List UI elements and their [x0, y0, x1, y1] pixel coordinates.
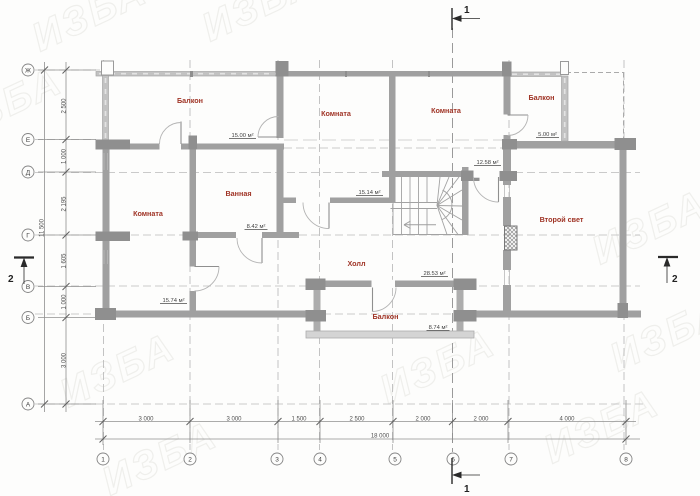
svg-text:1: 1 [101, 456, 105, 463]
svg-text:18 000: 18 000 [371, 434, 390, 440]
svg-text:Д: Д [26, 169, 31, 176]
svg-text:2 000: 2 000 [415, 417, 431, 423]
svg-text:2: 2 [8, 274, 14, 285]
svg-text:1: 1 [464, 484, 470, 495]
svg-text:Комната: Комната [321, 109, 352, 118]
svg-text:12.58 м²: 12.58 м² [476, 160, 498, 166]
svg-text:1 605: 1 605 [62, 253, 68, 269]
svg-text:Второй свет: Второй свет [540, 215, 584, 224]
svg-text:Балкон: Балкон [177, 96, 203, 105]
svg-text:Б: Б [26, 315, 30, 322]
svg-text:15.14 м²: 15.14 м² [358, 190, 380, 196]
svg-text:Балкон: Балкон [373, 312, 399, 321]
svg-text:Е: Е [26, 137, 31, 144]
svg-text:Ж: Ж [25, 67, 31, 74]
svg-text:11 500: 11 500 [40, 218, 46, 237]
svg-text:Комната: Комната [431, 106, 462, 115]
svg-text:2: 2 [672, 274, 678, 285]
svg-text:3 000: 3 000 [226, 417, 242, 423]
svg-text:1: 1 [464, 5, 470, 16]
svg-text:Холл: Холл [347, 259, 365, 268]
svg-text:А: А [26, 401, 31, 408]
svg-text:8: 8 [624, 456, 628, 463]
svg-text:15.74 м²: 15.74 м² [162, 298, 184, 304]
svg-text:4 000: 4 000 [559, 417, 575, 423]
svg-text:Г: Г [26, 232, 30, 239]
svg-text:15.00 м²: 15.00 м² [231, 133, 253, 139]
svg-text:Балкон: Балкон [529, 93, 555, 102]
svg-text:2 195: 2 195 [62, 196, 68, 212]
svg-text:3 000: 3 000 [62, 352, 68, 368]
svg-text:8.74 м²: 8.74 м² [429, 325, 448, 331]
svg-text:1 500: 1 500 [291, 417, 307, 423]
svg-text:Комната: Комната [133, 209, 164, 218]
svg-text:28.53 м²: 28.53 м² [423, 271, 445, 277]
svg-text:В: В [26, 284, 30, 291]
svg-text:8.42 м²: 8.42 м² [247, 224, 266, 230]
svg-text:1 000: 1 000 [62, 148, 68, 164]
svg-text:5.00 м²: 5.00 м² [538, 132, 557, 138]
svg-text:Ванная: Ванная [225, 189, 251, 198]
svg-text:5: 5 [393, 456, 397, 463]
svg-text:3: 3 [275, 456, 279, 463]
svg-text:2: 2 [188, 456, 192, 463]
svg-text:4: 4 [318, 456, 322, 463]
svg-text:7: 7 [509, 456, 513, 463]
svg-text:1 000: 1 000 [62, 294, 68, 310]
svg-text:3 000: 3 000 [138, 417, 154, 423]
svg-text:2 500: 2 500 [62, 98, 68, 114]
svg-text:2 500: 2 500 [349, 417, 365, 423]
svg-text:2 000: 2 000 [473, 417, 489, 423]
